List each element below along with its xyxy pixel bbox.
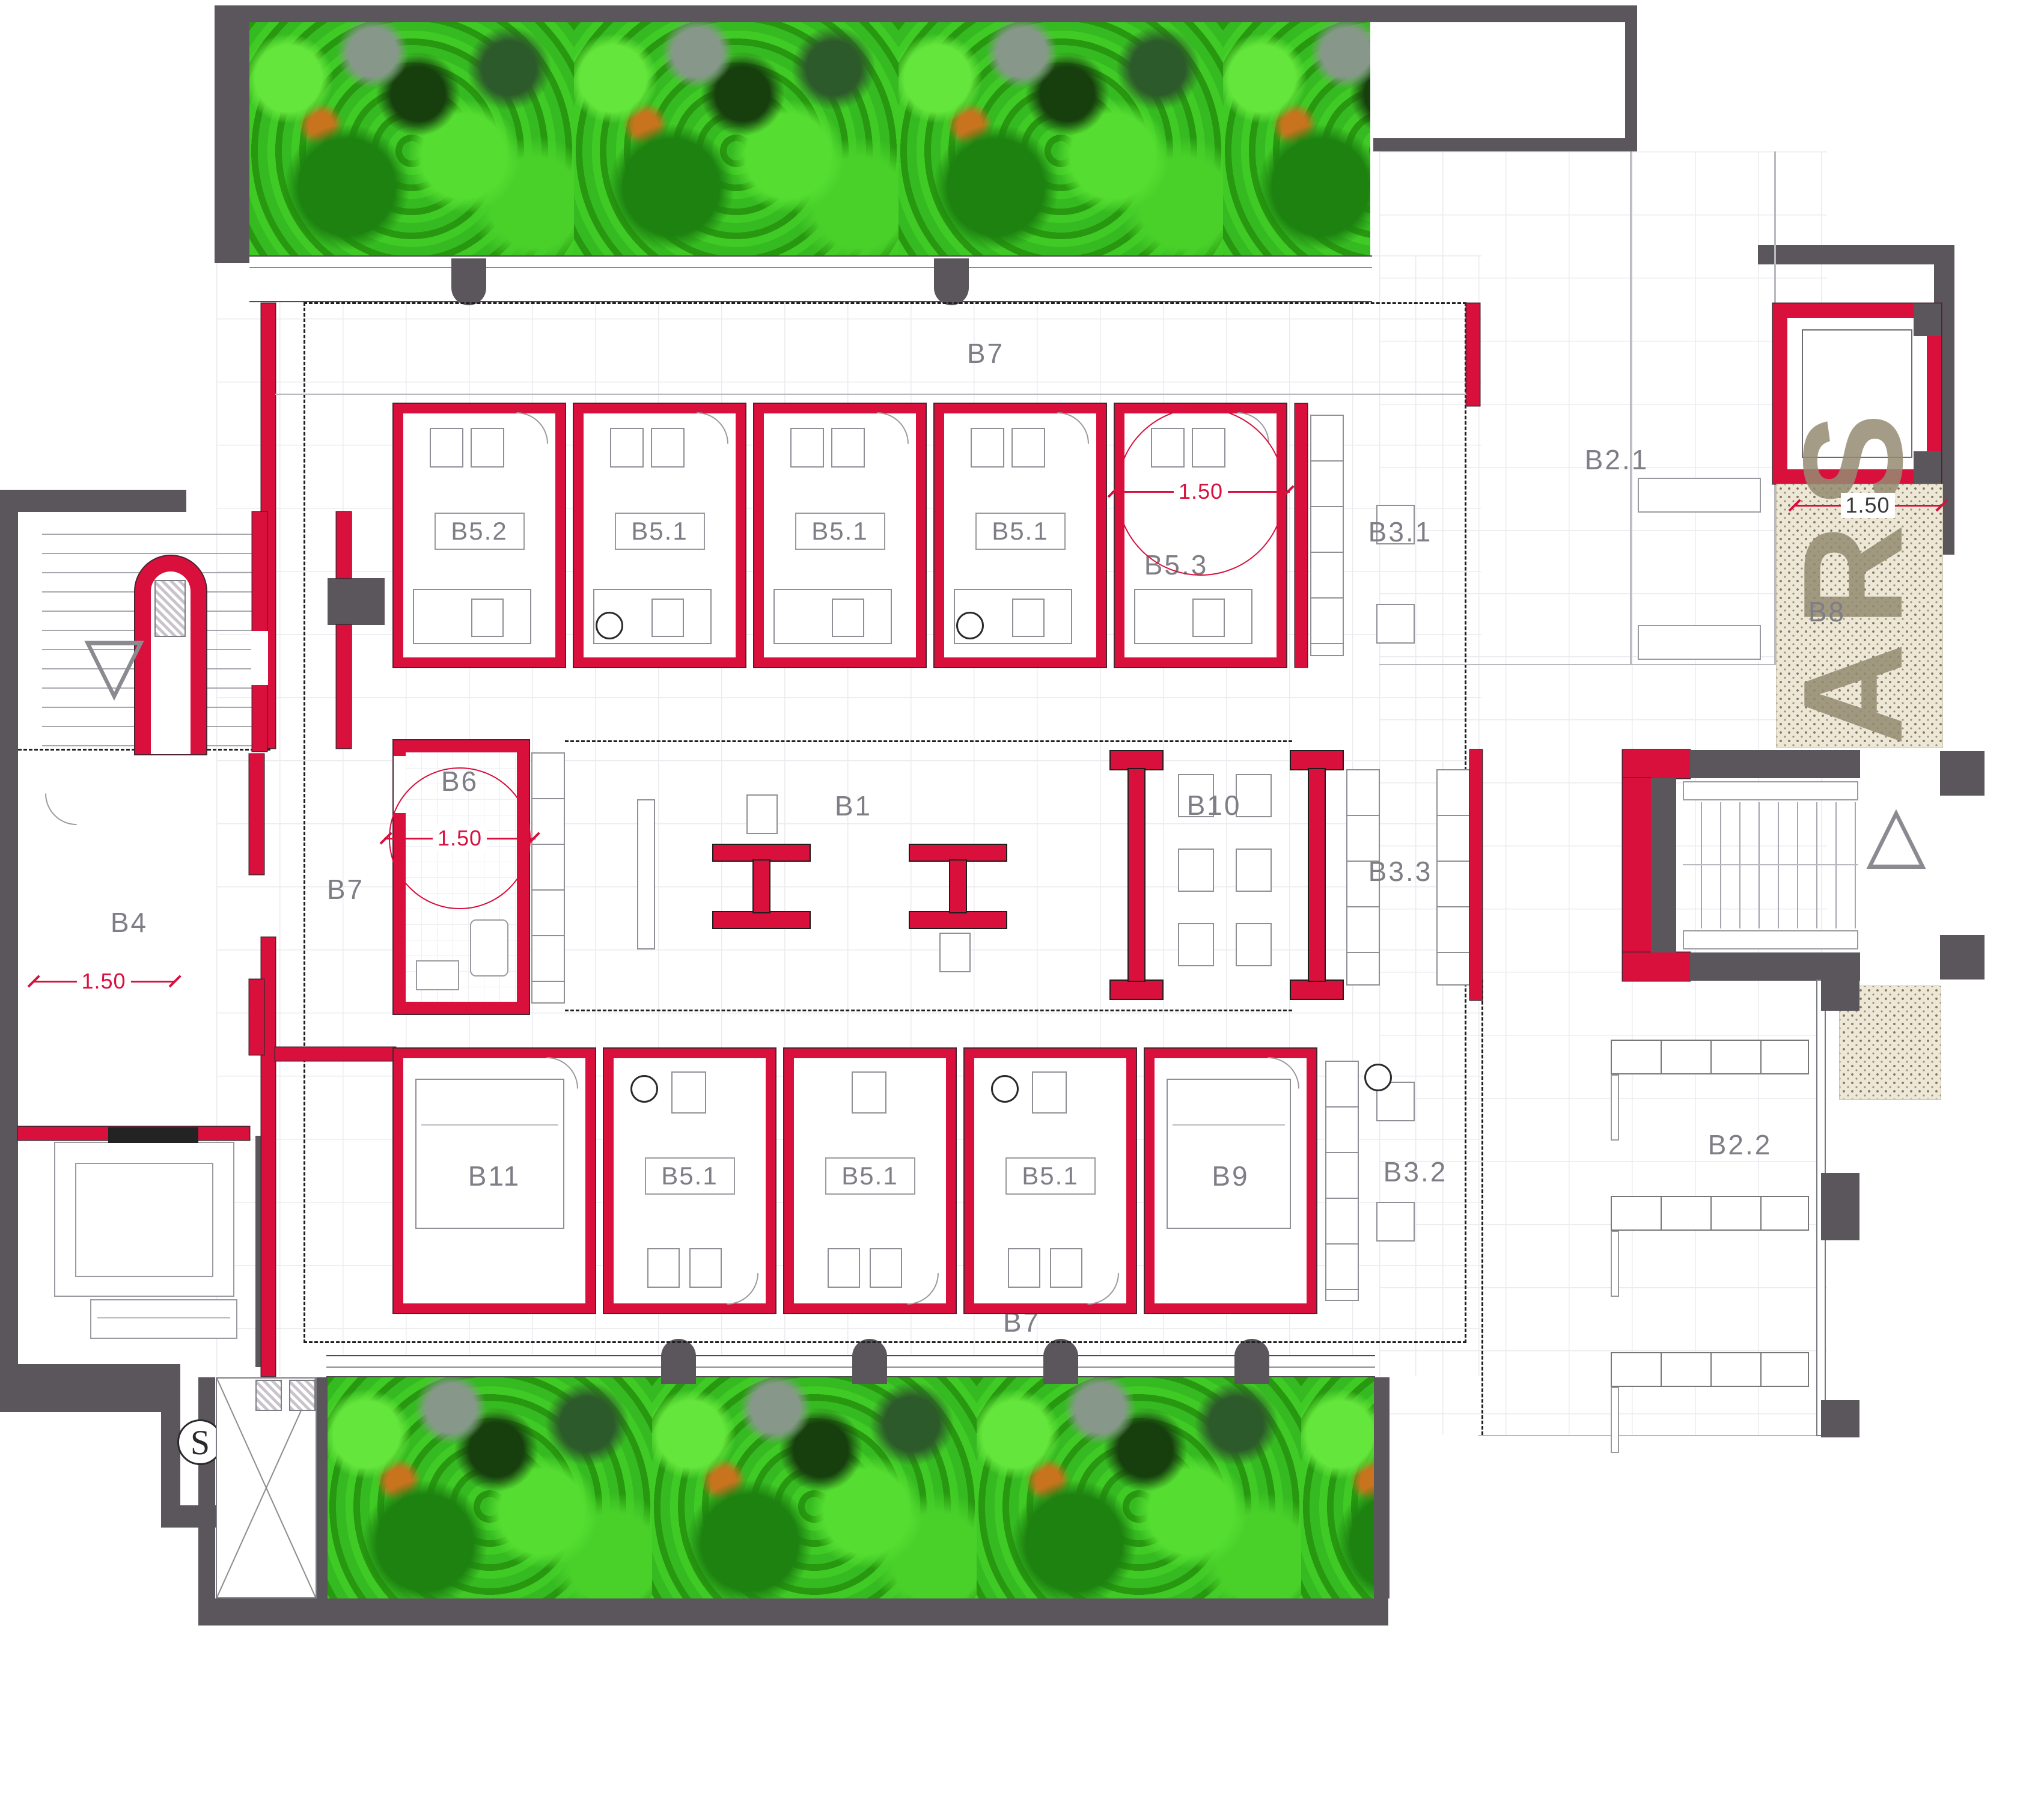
area-label-b31: B3.1 xyxy=(1368,516,1433,548)
room-label: B5.1 xyxy=(975,513,1066,550)
generated-layer: B7B7B7B2.1B2.2B8B4B6B1B10B3.3B3.1B3.2B5.… xyxy=(0,0,2044,1816)
chair xyxy=(1192,599,1225,637)
pillow xyxy=(971,428,1004,468)
room-cell: B5.1 xyxy=(604,1049,775,1313)
dimension-text: 1.50 xyxy=(433,826,487,851)
room-label: B5.1 xyxy=(795,513,885,550)
pillow xyxy=(610,428,644,468)
chair xyxy=(1012,599,1045,637)
area-label-b32: B3.2 xyxy=(1384,1156,1448,1188)
bed-line xyxy=(1173,1124,1285,1126)
room-cell: B9 xyxy=(1145,1049,1316,1313)
corridor-label: B7 xyxy=(967,337,1004,370)
chair xyxy=(647,1248,680,1288)
room-cell: B5.1 xyxy=(965,1049,1136,1313)
room-label: B5.1 xyxy=(615,513,705,550)
pillow xyxy=(471,428,504,468)
dimension-text: 1.50 xyxy=(1840,493,1894,518)
room-cell: B5.1 xyxy=(784,1049,956,1313)
pillow xyxy=(651,428,685,468)
chair xyxy=(1008,1248,1040,1288)
floor-plan: ▽ S xyxy=(0,0,2044,1816)
chair xyxy=(1050,1248,1082,1288)
room-label: B9 xyxy=(1212,1160,1249,1192)
chair xyxy=(689,1248,722,1288)
bed xyxy=(1167,1079,1291,1229)
room-label: B5.1 xyxy=(645,1157,735,1195)
room-cell: B5.1 xyxy=(935,404,1106,667)
room-cell: B5.1 xyxy=(574,404,745,667)
area-label-b33: B3.3 xyxy=(1368,855,1433,888)
sink xyxy=(630,1075,658,1103)
pillow xyxy=(831,428,865,468)
area-label-b4: B4 xyxy=(111,906,148,939)
bed-line xyxy=(421,1124,558,1126)
room-label: B5.2 xyxy=(435,513,525,550)
room-label: B5.1 xyxy=(825,1157,915,1195)
sink xyxy=(596,612,623,639)
room-label: B5.1 xyxy=(1005,1157,1096,1195)
pillow xyxy=(430,428,463,468)
pillow xyxy=(790,428,824,468)
chair xyxy=(870,1248,902,1288)
dimension-text: 1.50 xyxy=(1174,479,1228,504)
chair xyxy=(828,1248,860,1288)
room-cell: B11 xyxy=(394,1049,595,1313)
corridor-label: B7 xyxy=(327,873,364,906)
room-cell: B5.2 xyxy=(394,404,565,667)
sink xyxy=(991,1075,1019,1103)
area-label-b10: B10 xyxy=(1187,789,1242,821)
cabinet xyxy=(671,1071,706,1114)
chair xyxy=(651,599,684,637)
sink xyxy=(956,612,984,639)
room-label: B11 xyxy=(468,1160,520,1192)
area-label-b8: B8 xyxy=(1808,596,1846,628)
chair xyxy=(832,599,864,637)
area-label-b22: B2.2 xyxy=(1708,1129,1772,1161)
bed xyxy=(415,1079,564,1229)
dimension-text: 1.50 xyxy=(76,969,130,994)
cabinet xyxy=(1032,1071,1067,1114)
chair xyxy=(471,599,504,637)
area-label-b1: B1 xyxy=(835,790,872,822)
area-label-b21: B2.1 xyxy=(1585,443,1649,476)
pillow xyxy=(1011,428,1045,468)
room-cell: B5.1 xyxy=(754,404,926,667)
cabinet xyxy=(852,1071,886,1114)
